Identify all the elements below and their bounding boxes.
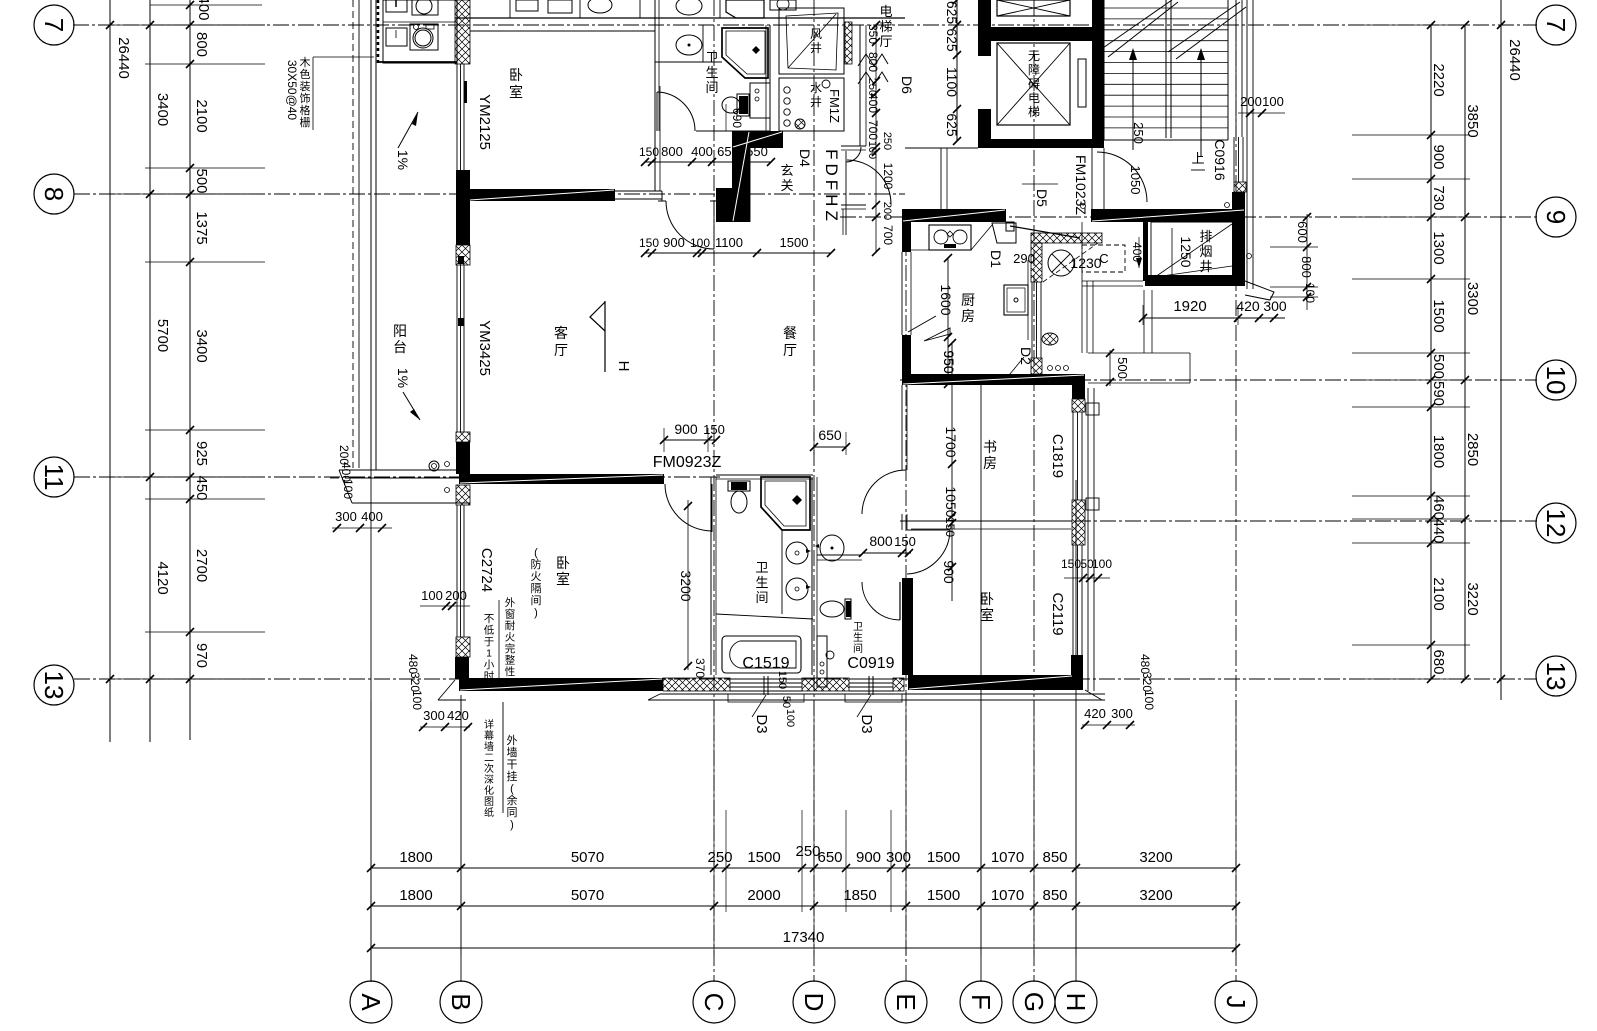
- svg-text:2100: 2100: [193, 99, 210, 132]
- svg-text:1700: 1700: [943, 426, 959, 457]
- svg-text:250: 250: [795, 843, 820, 860]
- svg-text:5070: 5070: [571, 887, 604, 904]
- svg-text:290: 290: [1013, 251, 1035, 266]
- svg-text:阳台: 阳台: [393, 323, 407, 355]
- svg-text:100: 100: [866, 141, 878, 159]
- svg-text:900: 900: [856, 849, 881, 866]
- svg-text:300: 300: [1263, 298, 1287, 314]
- svg-text:300: 300: [335, 509, 357, 524]
- svg-text:YM3425: YM3425: [476, 320, 493, 376]
- svg-text:无障碍电梯: 无障碍电梯: [1028, 49, 1040, 119]
- svg-text:2100: 2100: [1430, 577, 1447, 610]
- svg-text:460: 460: [1430, 495, 1447, 520]
- svg-text:100: 100: [784, 709, 796, 727]
- svg-text:D: D: [799, 993, 829, 1012]
- svg-text:2220: 2220: [1430, 63, 1447, 96]
- svg-text:440: 440: [1430, 518, 1447, 543]
- svg-text:风井: 风井: [810, 27, 822, 55]
- svg-text:1850: 1850: [843, 887, 876, 904]
- svg-text:900: 900: [1430, 144, 1447, 169]
- svg-text:200: 200: [1240, 94, 1262, 109]
- svg-text:1800: 1800: [399, 887, 432, 904]
- svg-text:1500: 1500: [1430, 299, 1447, 332]
- svg-text:1920: 1920: [1173, 298, 1206, 315]
- svg-text:800: 800: [661, 144, 683, 159]
- svg-text:2000: 2000: [747, 887, 780, 904]
- svg-text:680: 680: [1430, 649, 1447, 674]
- svg-text:590: 590: [1430, 381, 1447, 406]
- svg-text:卧室: 卧室: [509, 67, 523, 100]
- svg-text:150: 150: [639, 145, 659, 159]
- svg-text:FM1023Z: FM1023Z: [1073, 155, 1089, 215]
- svg-text:B: B: [446, 993, 476, 1010]
- svg-text:卧室: 卧室: [980, 591, 994, 623]
- svg-text:150: 150: [894, 534, 916, 549]
- svg-text:C0916: C0916: [1212, 139, 1228, 180]
- svg-text:26440: 26440: [1506, 39, 1523, 81]
- svg-text:3200: 3200: [1139, 849, 1172, 866]
- svg-text:690: 690: [730, 108, 744, 128]
- svg-text:FM1Z: FM1Z: [827, 89, 842, 123]
- svg-text:13: 13: [39, 671, 69, 700]
- svg-text:400: 400: [866, 93, 880, 113]
- svg-text:外窗耐火完整性: 外窗耐火完整性: [505, 597, 516, 678]
- svg-text:卧室: 卧室: [556, 555, 570, 587]
- svg-text:800: 800: [866, 52, 880, 72]
- svg-text:26440: 26440: [115, 37, 132, 79]
- svg-text:1050: 1050: [943, 486, 959, 517]
- svg-text:1100: 1100: [715, 235, 743, 250]
- svg-text:FM0923Z: FM0923Z: [653, 454, 722, 471]
- svg-text:850: 850: [1042, 887, 1067, 904]
- svg-text:625: 625: [944, 28, 960, 52]
- svg-text:1600: 1600: [938, 284, 954, 315]
- svg-text:卫生间: 卫生间: [705, 50, 718, 95]
- svg-text:650: 650: [818, 427, 842, 443]
- svg-text:7: 7: [39, 18, 69, 32]
- svg-text:排烟井: 排烟井: [1199, 229, 1212, 274]
- svg-text:900: 900: [663, 235, 685, 250]
- svg-text:11: 11: [39, 464, 69, 491]
- svg-text:300: 300: [1111, 706, 1133, 721]
- svg-text:1300: 1300: [1430, 231, 1447, 264]
- svg-text:250: 250: [881, 132, 893, 150]
- svg-text:7: 7: [1541, 18, 1571, 32]
- svg-text:H: H: [615, 361, 632, 372]
- svg-text:420: 420: [447, 708, 469, 723]
- svg-text:700: 700: [866, 120, 880, 140]
- svg-text:350: 350: [866, 24, 880, 44]
- svg-text:500: 500: [193, 168, 210, 193]
- svg-text:150: 150: [1061, 557, 1081, 571]
- svg-text:1500: 1500: [780, 235, 809, 250]
- svg-text:1800: 1800: [399, 849, 432, 866]
- svg-text:950: 950: [941, 350, 957, 374]
- svg-text:600: 600: [1295, 221, 1310, 243]
- svg-text:900: 900: [674, 421, 698, 437]
- svg-text:300: 300: [423, 708, 445, 723]
- svg-text:3300: 3300: [1464, 282, 1481, 315]
- svg-text:900: 900: [941, 560, 957, 584]
- svg-text:1200: 1200: [881, 163, 895, 190]
- svg-text:50: 50: [780, 696, 792, 708]
- svg-text:卫生间: 卫生间: [755, 560, 768, 605]
- svg-text:3400: 3400: [154, 93, 171, 126]
- svg-text:H: H: [1061, 993, 1091, 1012]
- svg-text:3850: 3850: [1464, 104, 1481, 137]
- svg-text:17340: 17340: [783, 929, 825, 946]
- svg-text:水井: 水井: [810, 81, 822, 109]
- svg-text:1230: 1230: [1070, 255, 1101, 271]
- svg-text:2850: 2850: [1464, 433, 1481, 466]
- svg-text:400: 400: [195, 0, 212, 21]
- svg-text:13: 13: [1541, 662, 1571, 691]
- svg-text:420: 420: [1084, 706, 1106, 721]
- svg-text:100: 100: [421, 588, 443, 603]
- svg-text:C2724: C2724: [478, 548, 495, 592]
- svg-text:800: 800: [869, 533, 893, 549]
- svg-text:1070: 1070: [991, 849, 1024, 866]
- svg-text:A: A: [356, 993, 386, 1011]
- svg-text:1500: 1500: [927, 887, 960, 904]
- svg-text:10: 10: [1541, 366, 1571, 395]
- svg-text:250: 250: [1131, 122, 1146, 144]
- svg-text:970: 970: [193, 643, 210, 668]
- svg-text:1100: 1100: [944, 67, 960, 97]
- svg-text:1250: 1250: [1178, 236, 1194, 267]
- svg-text:FDFHZ: FDFHZ: [822, 149, 841, 225]
- svg-text:400: 400: [691, 144, 713, 159]
- svg-text:书房: 书房: [983, 439, 997, 471]
- svg-text:3400: 3400: [193, 329, 210, 362]
- svg-text:D6: D6: [899, 76, 915, 94]
- svg-text:700: 700: [881, 225, 895, 245]
- svg-text:3220: 3220: [1464, 582, 1481, 615]
- svg-text:450: 450: [193, 475, 210, 500]
- svg-text:详幕墙二次深化图纸: 详幕墙二次深化图纸: [484, 718, 494, 819]
- svg-text:1%: 1%: [395, 368, 411, 388]
- svg-text:1%: 1%: [395, 150, 411, 170]
- svg-text:D4: D4: [797, 149, 813, 167]
- svg-text:730: 730: [1430, 185, 1447, 210]
- svg-text:外墙干挂(余同): 外墙干挂(余同): [507, 734, 518, 831]
- svg-text:100: 100: [341, 479, 355, 499]
- svg-text:D3: D3: [753, 714, 770, 733]
- svg-text:E: E: [891, 993, 921, 1010]
- svg-text:650: 650: [817, 849, 842, 866]
- svg-text:客厅: 客厅: [554, 325, 568, 358]
- svg-text:1500: 1500: [927, 849, 960, 866]
- svg-text:D1: D1: [988, 250, 1004, 268]
- svg-text:1500: 1500: [747, 849, 780, 866]
- svg-text:150: 150: [943, 517, 957, 537]
- svg-text:30X50@40: 30X50@40: [285, 60, 299, 121]
- svg-text:200: 200: [881, 202, 893, 220]
- svg-text:电梯厅: 电梯厅: [879, 4, 892, 49]
- svg-text:5070: 5070: [571, 849, 604, 866]
- svg-text:12: 12: [1541, 509, 1571, 538]
- svg-text:150: 150: [703, 422, 725, 437]
- svg-text:玄关: 玄关: [780, 163, 793, 193]
- svg-text:不低于1小时: 不低于1小时: [484, 613, 495, 683]
- svg-text:8: 8: [39, 187, 69, 201]
- svg-text:C1819: C1819: [1049, 434, 1066, 478]
- svg-text:1800: 1800: [1430, 435, 1447, 468]
- svg-text:3200: 3200: [1139, 887, 1172, 904]
- svg-text:420: 420: [1236, 298, 1260, 314]
- svg-text:100: 100: [1142, 690, 1156, 710]
- svg-text:625: 625: [944, 113, 960, 137]
- svg-text:150: 150: [639, 236, 659, 250]
- svg-text:100: 100: [1092, 557, 1112, 571]
- svg-text:餐厅: 餐厅: [783, 325, 797, 358]
- svg-text:1375: 1375: [193, 211, 210, 244]
- svg-text:800: 800: [193, 32, 210, 57]
- svg-text:卫生间: 卫生间: [853, 622, 863, 655]
- svg-text:300: 300: [886, 849, 911, 866]
- svg-text:400: 400: [361, 509, 383, 524]
- svg-text:850: 850: [1042, 849, 1067, 866]
- svg-text:C: C: [699, 993, 729, 1012]
- svg-text:厨房: 厨房: [961, 292, 975, 324]
- svg-text:550: 550: [746, 144, 768, 159]
- svg-text:D3: D3: [858, 714, 875, 733]
- svg-text:925: 925: [193, 441, 210, 466]
- svg-text:9: 9: [1541, 210, 1571, 224]
- svg-text:2700: 2700: [193, 549, 210, 582]
- svg-text:500: 500: [1115, 357, 1130, 379]
- svg-text:100: 100: [690, 236, 710, 250]
- svg-text:250: 250: [707, 849, 732, 866]
- svg-text:C0919: C0919: [847, 655, 894, 672]
- svg-text:5700: 5700: [154, 319, 171, 352]
- svg-text:200: 200: [445, 588, 467, 603]
- svg-text:500: 500: [1430, 354, 1447, 379]
- svg-text:上: 上: [1191, 151, 1204, 166]
- svg-text:800: 800: [1299, 256, 1314, 278]
- svg-text:D5: D5: [1034, 189, 1050, 207]
- svg-text:150: 150: [776, 671, 788, 689]
- svg-text:木色装饰格栅: 木色装饰格栅: [300, 56, 311, 129]
- svg-text:YM2125: YM2125: [476, 94, 493, 150]
- svg-text:3200: 3200: [678, 570, 694, 601]
- svg-text:100: 100: [1262, 94, 1284, 109]
- svg-text:C2119: C2119: [1049, 592, 1066, 635]
- svg-text:F: F: [966, 994, 996, 1010]
- svg-text:J: J: [1221, 996, 1251, 1009]
- svg-text:625: 625: [944, 1, 960, 25]
- svg-text:100: 100: [410, 690, 424, 710]
- svg-text:C: C: [1099, 251, 1108, 266]
- svg-text:G: G: [1019, 992, 1049, 1012]
- svg-text:370: 370: [693, 658, 707, 678]
- svg-text:4120: 4120: [154, 561, 171, 594]
- svg-text:C1519: C1519: [742, 655, 789, 672]
- svg-text:1070: 1070: [991, 887, 1024, 904]
